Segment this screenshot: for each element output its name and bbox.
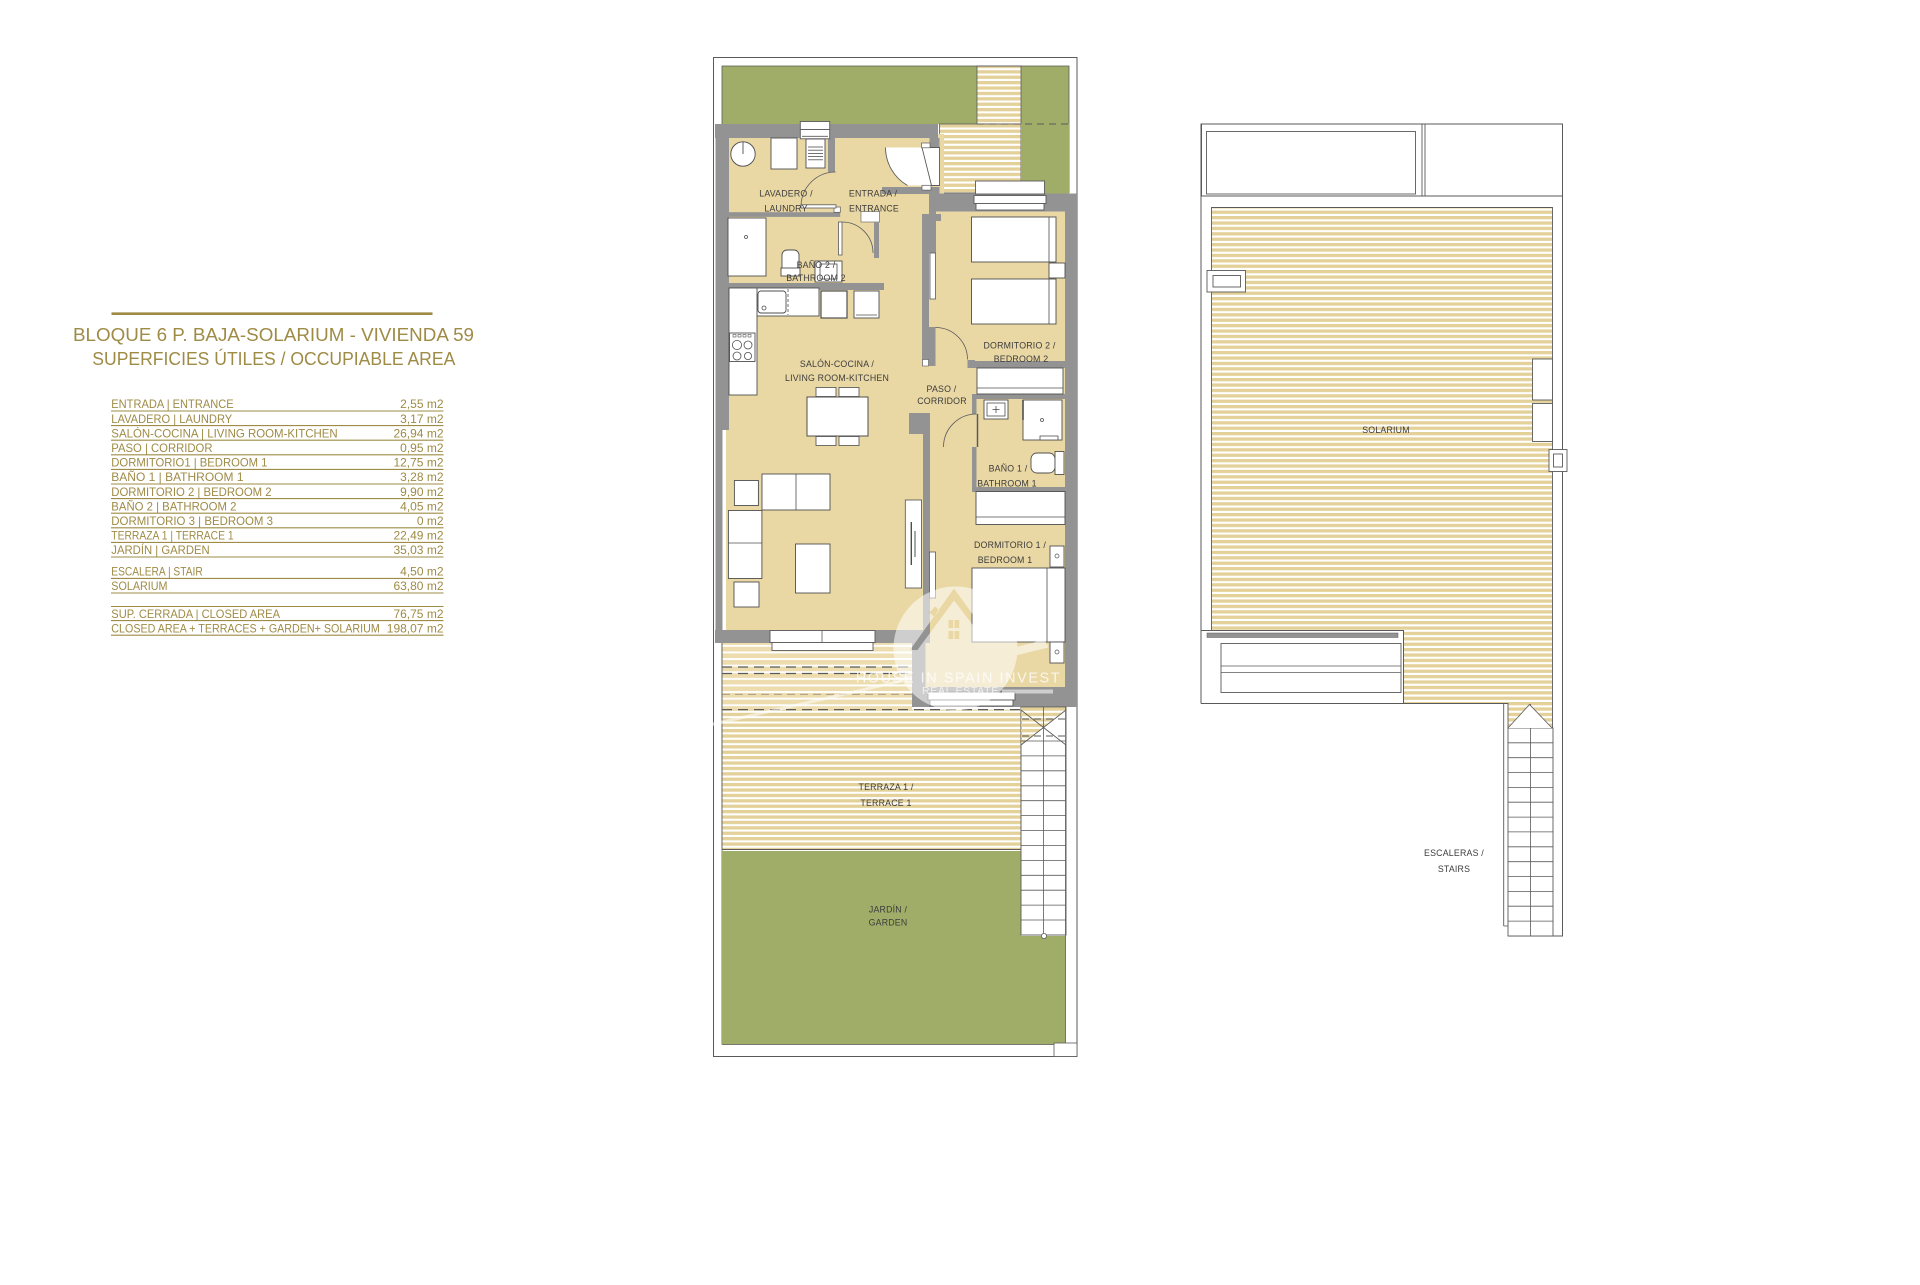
- svg-text:SOLARIUM: SOLARIUM: [1362, 425, 1410, 435]
- svg-text:REAL ESTATE: REAL ESTATE: [922, 685, 999, 697]
- svg-text:TERRAZA 1 /: TERRAZA 1 /: [859, 782, 914, 792]
- svg-text:ENTRANCE: ENTRANCE: [849, 204, 899, 214]
- svg-text:SUPERFICIES ÚTILES / OCCUPIABL: SUPERFICIES ÚTILES / OCCUPIABLE AREA: [92, 348, 455, 369]
- svg-text:DORMITORIO 3 | BEDROOM 3: DORMITORIO 3 | BEDROOM 3: [111, 514, 273, 528]
- svg-text:STAIRS: STAIRS: [1438, 864, 1470, 874]
- svg-text:SOLARIUM: SOLARIUM: [111, 579, 167, 593]
- svg-text:9,90 m2: 9,90 m2: [400, 485, 444, 499]
- svg-text:DORMITORIO 1 /: DORMITORIO 1 /: [974, 540, 1046, 550]
- svg-text:2,55 m2: 2,55 m2: [400, 397, 444, 411]
- svg-text:JARDÍN | GARDEN: JARDÍN | GARDEN: [111, 542, 209, 557]
- svg-text:26,94 m2: 26,94 m2: [393, 426, 443, 440]
- svg-text:3,28 m2: 3,28 m2: [400, 470, 444, 484]
- svg-text:ESCALERA | STAIR: ESCALERA | STAIR: [111, 565, 203, 579]
- svg-text:ENTRADA | ENTRANCE: ENTRADA | ENTRANCE: [111, 397, 233, 411]
- svg-text:JARDÍN /: JARDÍN /: [869, 905, 908, 915]
- svg-text:LIVING ROOM-KITCHEN: LIVING ROOM-KITCHEN: [785, 373, 889, 383]
- svg-text:BLOQUE 6 P. BAJA-SOLARIUM - VI: BLOQUE 6 P. BAJA-SOLARIUM - VIVIENDA 59: [73, 325, 474, 345]
- svg-text:35,03 m2: 35,03 m2: [393, 543, 443, 557]
- svg-text:BAÑO 1 | BATHROOM 1: BAÑO 1 | BATHROOM 1: [111, 470, 244, 484]
- svg-text:DORMITORIO 2 /: DORMITORIO 2 /: [983, 341, 1055, 351]
- svg-text:GARDEN: GARDEN: [869, 918, 908, 928]
- svg-text:198,07 m2: 198,07 m2: [387, 621, 444, 635]
- svg-text:CLOSED AREA + TERRACES + GARDE: CLOSED AREA + TERRACES + GARDEN+ SOLARIU…: [111, 621, 380, 635]
- svg-text:22,49 m2: 22,49 m2: [393, 529, 443, 543]
- svg-text:SALÓN-COCINA | LIVING ROOM-KIT: SALÓN-COCINA | LIVING ROOM-KITCHEN: [111, 425, 337, 440]
- svg-text:BAÑO 2 /: BAÑO 2 /: [797, 260, 836, 270]
- svg-text:DORMITORIO1 | BEDROOM 1: DORMITORIO1 | BEDROOM 1: [111, 456, 267, 470]
- svg-text:LAUNDRY: LAUNDRY: [764, 204, 807, 214]
- svg-text:BAÑO 2 | BATHROOM 2: BAÑO 2 | BATHROOM 2: [111, 499, 236, 513]
- svg-text:LAVADERO | LAUNDRY: LAVADERO | LAUNDRY: [111, 412, 232, 426]
- svg-text:4,05 m2: 4,05 m2: [400, 499, 444, 513]
- svg-text:BATHROOM 1: BATHROOM 1: [977, 479, 1037, 489]
- svg-text:SALÓN-COCINA /: SALÓN-COCINA /: [800, 359, 875, 369]
- svg-text:0 m2: 0 m2: [417, 514, 444, 528]
- svg-text:PASO | CORRIDOR: PASO | CORRIDOR: [111, 441, 213, 455]
- svg-text:63,80 m2: 63,80 m2: [393, 579, 443, 593]
- svg-text:ESCALERAS /: ESCALERAS /: [1424, 848, 1484, 858]
- svg-text:BEDROOM 2: BEDROOM 2: [994, 354, 1049, 364]
- svg-text:PASO /: PASO /: [927, 384, 957, 394]
- svg-text:76,75 m2: 76,75 m2: [393, 607, 443, 621]
- svg-text:ENTRADA /: ENTRADA /: [849, 189, 898, 199]
- svg-text:BAÑO 1 /: BAÑO 1 /: [989, 464, 1028, 474]
- svg-text:TERRACE 1: TERRACE 1: [860, 798, 911, 808]
- svg-text:0,95 m2: 0,95 m2: [400, 441, 444, 455]
- svg-text:BEDROOM 1: BEDROOM 1: [978, 555, 1033, 565]
- svg-text:4,50 m2: 4,50 m2: [400, 565, 444, 579]
- svg-text:DORMITORIO 2 | BEDROOM 2: DORMITORIO 2 | BEDROOM 2: [111, 485, 272, 499]
- svg-text:3,17 m2: 3,17 m2: [400, 412, 444, 426]
- svg-text:BATHROOM 2: BATHROOM 2: [786, 273, 846, 283]
- svg-text:SUP. CERRADA | CLOSED AREA: SUP. CERRADA | CLOSED AREA: [111, 607, 280, 621]
- svg-text:LAVADERO /: LAVADERO /: [759, 189, 813, 199]
- svg-text:CORRIDOR: CORRIDOR: [917, 396, 967, 406]
- svg-text:TERRAZA 1 | TERRACE 1: TERRAZA 1 | TERRACE 1: [111, 529, 234, 543]
- svg-text:12,75 m2: 12,75 m2: [393, 456, 443, 470]
